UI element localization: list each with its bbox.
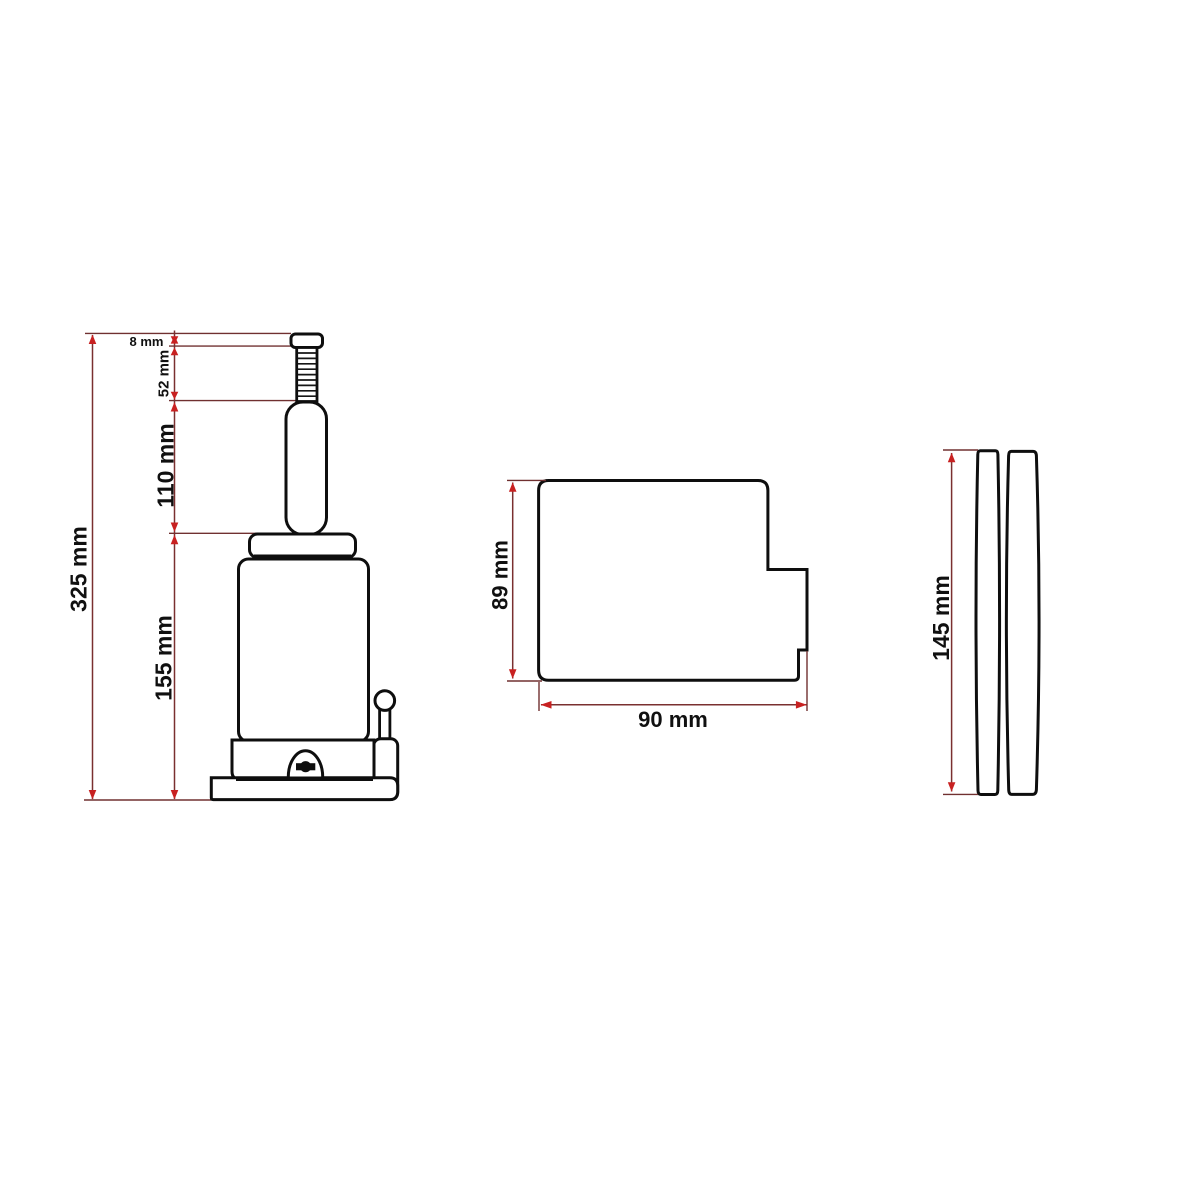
svg-text:90 mm: 90 mm [638,707,708,732]
svg-text:89 mm: 89 mm [488,540,513,610]
svg-text:145 mm: 145 mm [928,575,954,661]
svg-text:325 mm: 325 mm [66,526,92,612]
svg-text:52 mm: 52 mm [156,350,173,398]
svg-text:155 mm: 155 mm [151,615,177,701]
svg-text:8 mm: 8 mm [130,334,164,349]
svg-text:110 mm: 110 mm [153,423,179,507]
